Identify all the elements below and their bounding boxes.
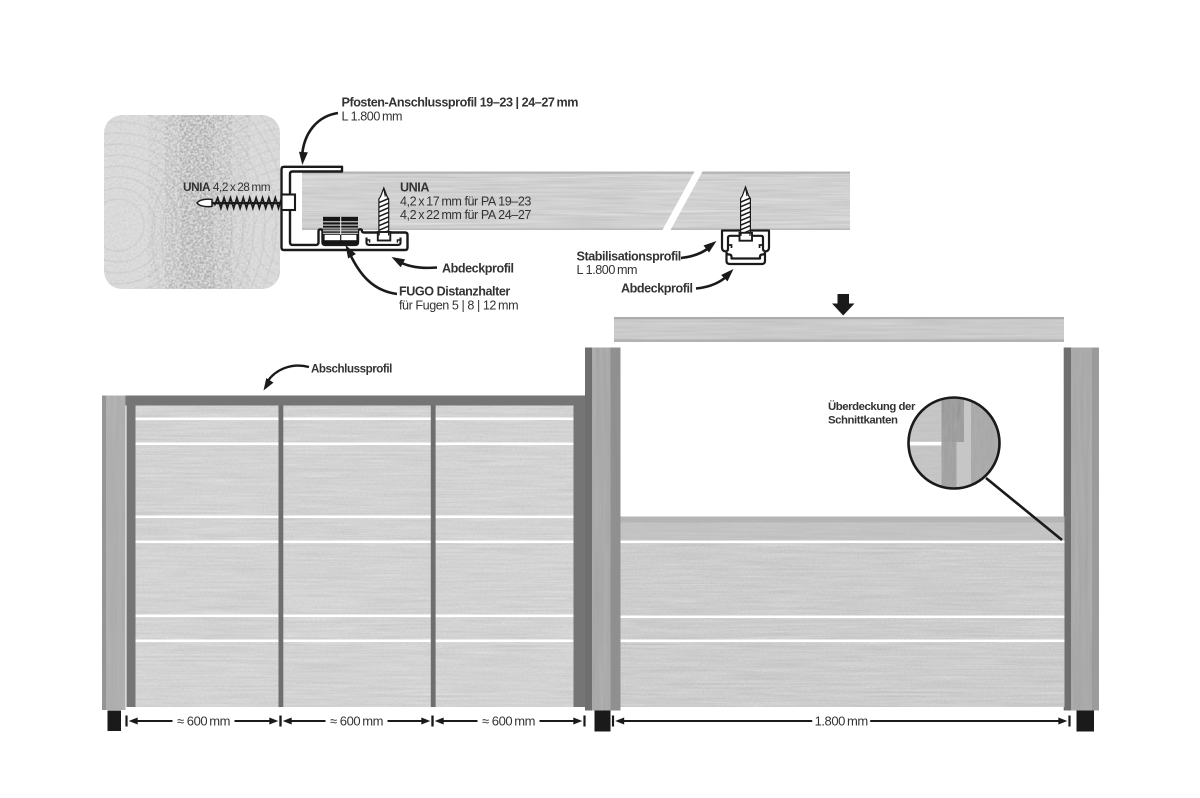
- svg-text:≈ 600 mm: ≈ 600 mm: [177, 714, 230, 729]
- svg-text:Überdeckung der: Überdeckung der: [828, 400, 916, 413]
- svg-text:Abschlussprofil: Abschlussprofil: [311, 363, 392, 376]
- svg-text:4,2 x 22 mm für PA 24–27: 4,2 x 22 mm für PA 24–27: [400, 208, 531, 222]
- svg-text:≈ 600 mm: ≈ 600 mm: [330, 714, 383, 729]
- svg-text:≈ 600 mm: ≈ 600 mm: [482, 714, 535, 729]
- svg-text:Stabilisationsprofil: Stabilisationsprofil: [577, 250, 681, 264]
- svg-text:4,2 x 17 mm für PA 19–23: 4,2 x 17 mm für PA 19–23: [400, 194, 531, 208]
- svg-text:L 1.800 mm: L 1.800 mm: [342, 110, 403, 124]
- svg-text:Abdeckprofil: Abdeckprofil: [621, 282, 693, 296]
- svg-text:FUGO Distanzhalter: FUGO Distanzhalter: [399, 285, 510, 299]
- svg-text:Schnittkanten: Schnittkanten: [828, 415, 898, 427]
- svg-text:1.800 mm: 1.800 mm: [815, 714, 868, 729]
- svg-text:UNIA 4,2 x 28 mm: UNIA 4,2 x 28 mm: [183, 180, 271, 194]
- svg-text:L 1.800 mm: L 1.800 mm: [577, 263, 638, 277]
- svg-text:Abdeckprofil: Abdeckprofil: [442, 262, 514, 276]
- svg-text:Pfosten-Anschlussprofil 19–23: Pfosten-Anschlussprofil 19–23 | 24–27 mm: [342, 96, 579, 110]
- svg-text:für Fugen 5 | 8 | 12 mm: für Fugen 5 | 8 | 12 mm: [399, 299, 518, 313]
- svg-text:UNIA: UNIA: [400, 181, 429, 195]
